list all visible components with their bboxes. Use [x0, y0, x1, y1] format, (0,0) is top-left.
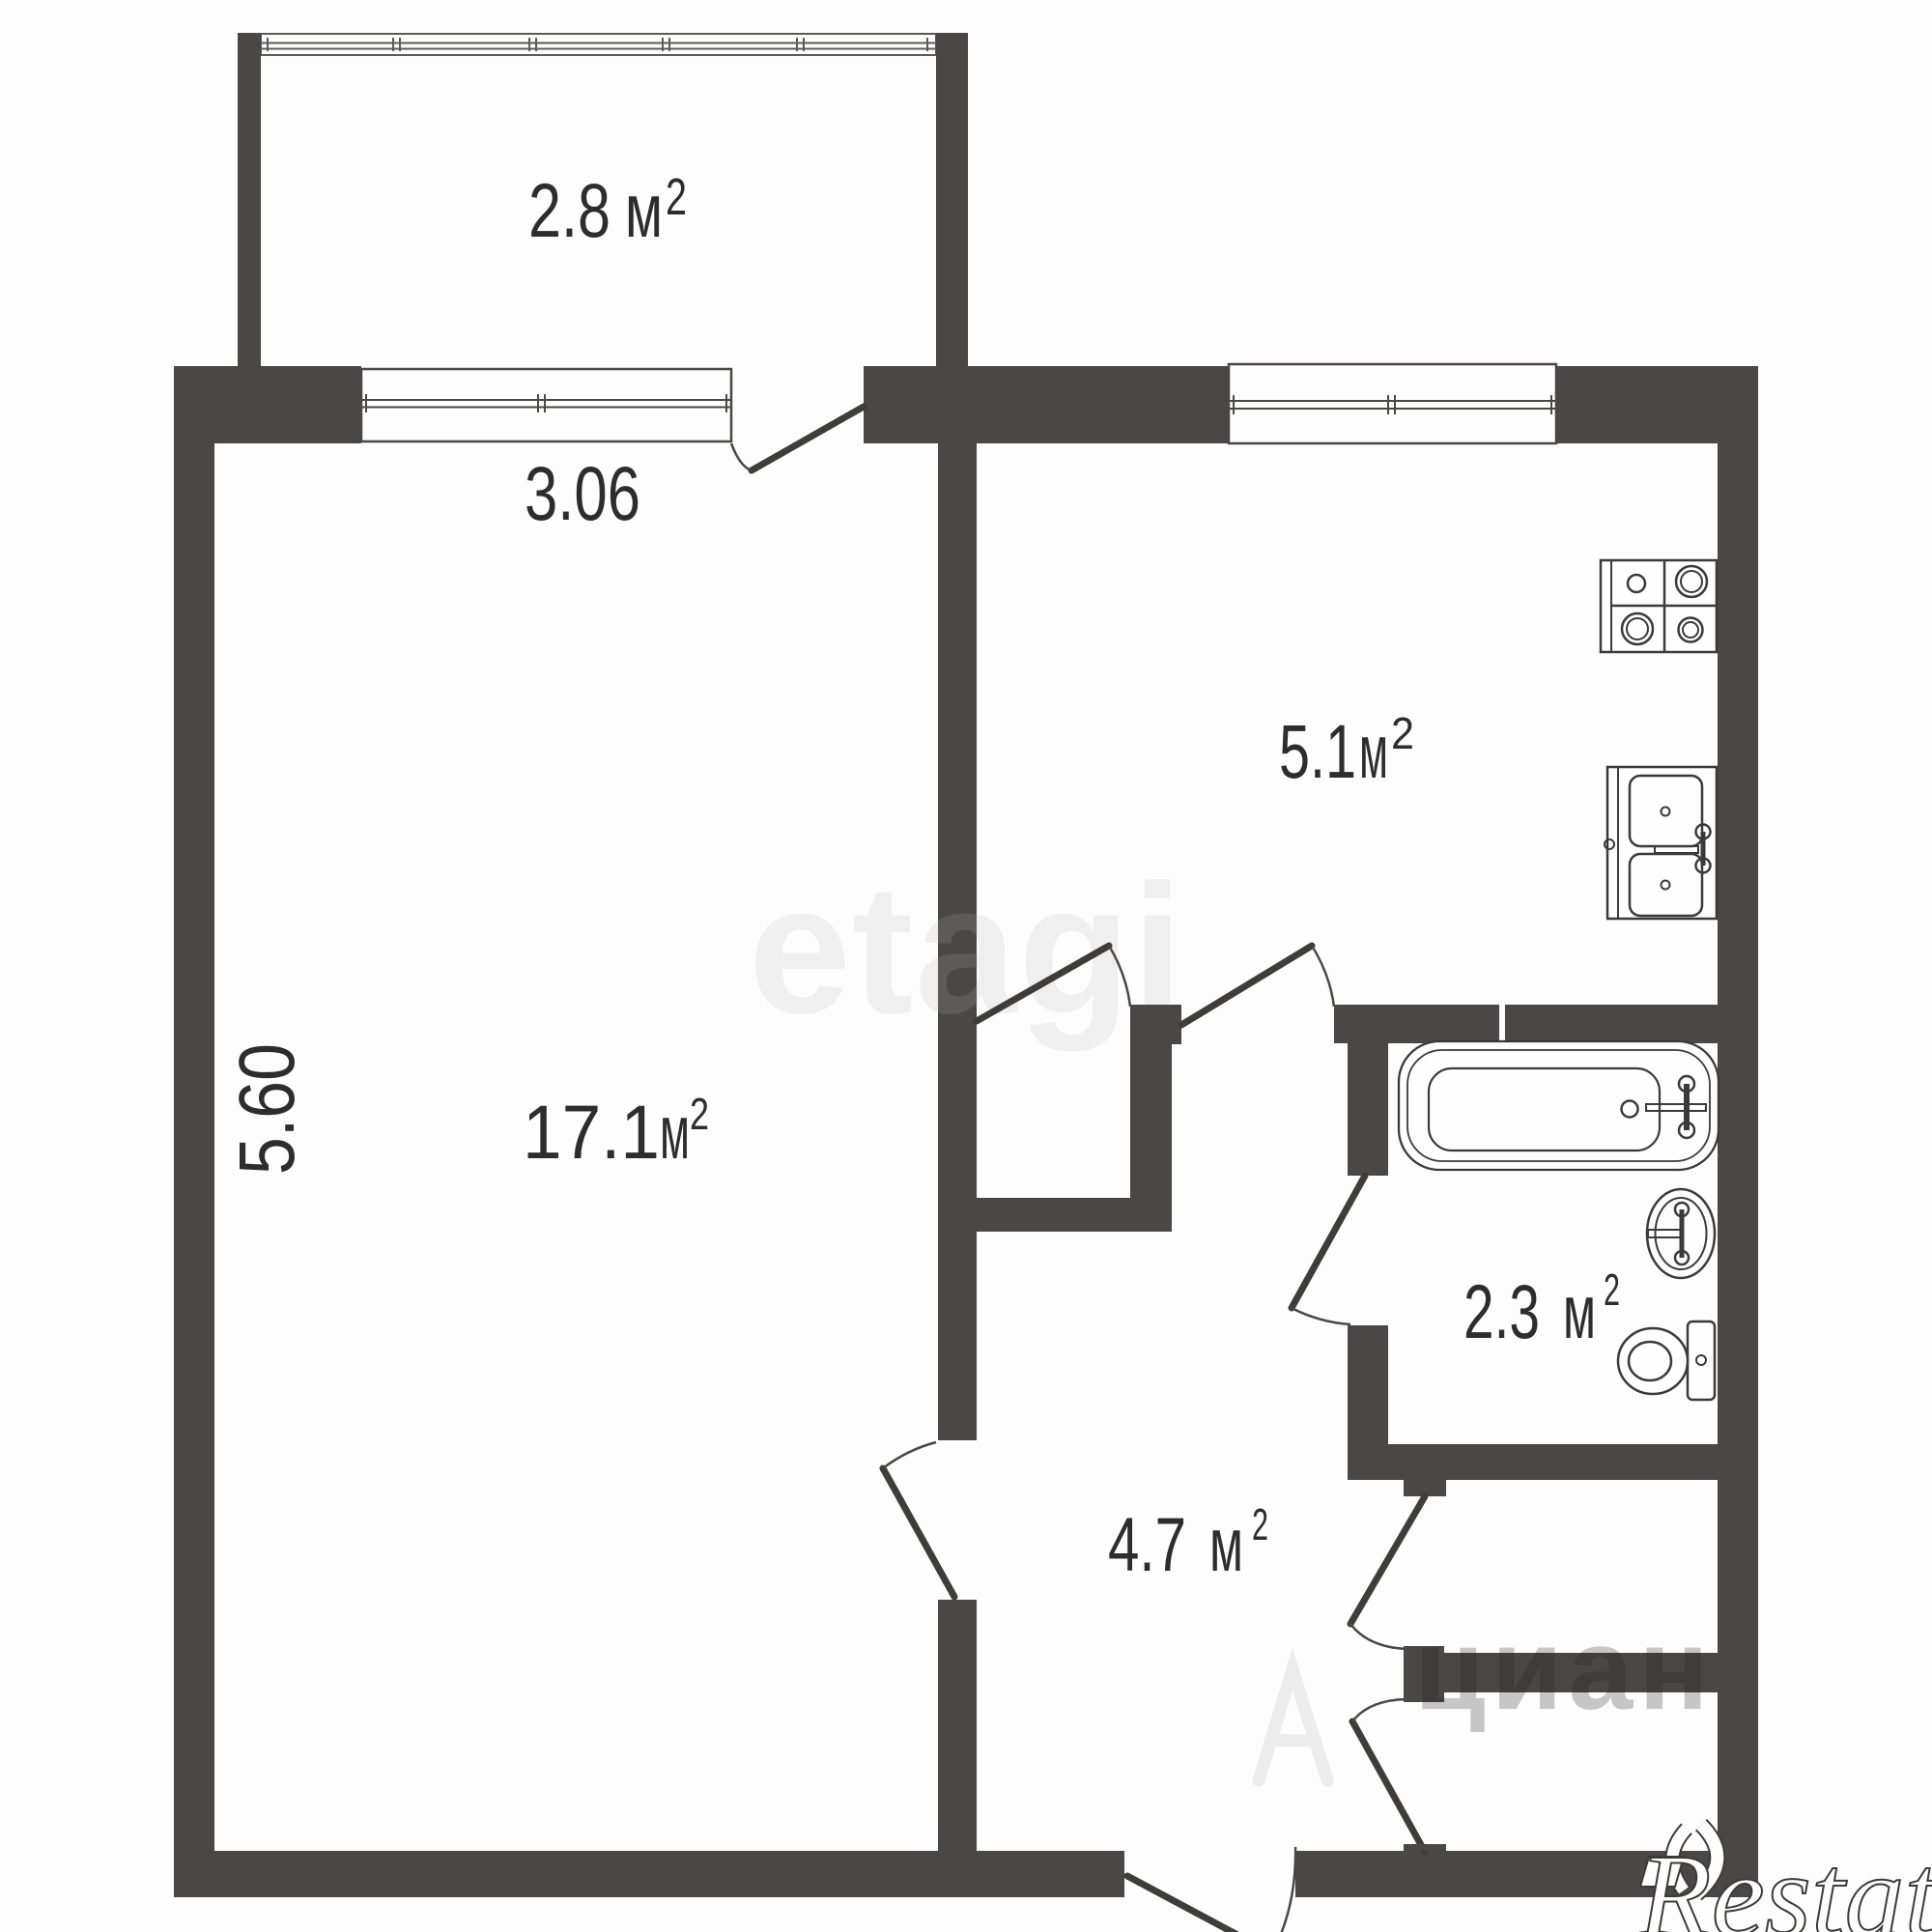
svg-text:2.3: 2.3 [1463, 1268, 1540, 1354]
svg-text:Restate: Restate [1637, 1830, 1932, 1932]
svg-text:5.1: 5.1 [1279, 708, 1356, 794]
svg-text:2: 2 [690, 1089, 709, 1139]
svg-text:2: 2 [1604, 1264, 1620, 1315]
svg-text:17.1: 17.1 [523, 1089, 660, 1175]
svg-text:2: 2 [1391, 708, 1414, 758]
svg-text:3.06: 3.06 [525, 450, 640, 536]
svg-text:4.7: 4.7 [1108, 1501, 1186, 1587]
svg-text:2: 2 [1252, 1499, 1268, 1549]
svg-text:м: м [660, 1089, 690, 1175]
svg-text:5.60: 5.60 [223, 1043, 311, 1175]
svg-text:м: м [1563, 1268, 1596, 1354]
svg-text:2: 2 [666, 168, 687, 226]
svg-text:2.8: 2.8 [528, 167, 611, 253]
svg-text:м: м [1359, 708, 1388, 794]
svg-text:м: м [1209, 1501, 1243, 1587]
svg-text:м: м [625, 167, 663, 253]
